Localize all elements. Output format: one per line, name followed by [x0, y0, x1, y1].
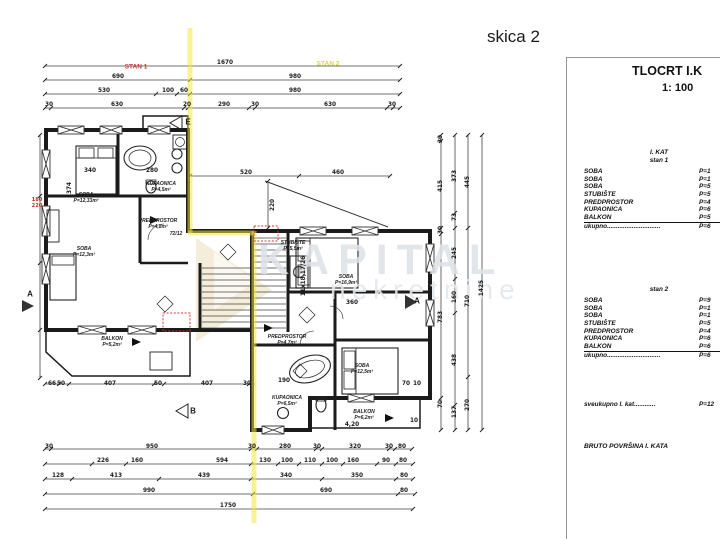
- dimension-label: 20: [183, 102, 191, 108]
- dimension-label: 280: [279, 444, 291, 450]
- dimension-label: 630: [111, 102, 123, 108]
- area-row: PREDPROSTORP=4: [584, 199, 720, 207]
- room-area: P=12,33m²: [74, 198, 99, 204]
- dimension-label: 30: [248, 444, 256, 450]
- dimension-label: 90: [382, 458, 390, 464]
- dimension-label: 226: [97, 458, 109, 464]
- sketch-title: skica 2: [487, 27, 540, 47]
- area-row: SOBAP=9: [584, 297, 720, 305]
- dimension-label: 30: [251, 102, 259, 108]
- section-marker-e: E: [185, 118, 190, 127]
- area-row: KUPAONICAP=6: [584, 335, 720, 343]
- dimension-label: 415: [438, 180, 444, 192]
- dimension-label: 50: [154, 381, 162, 387]
- dimension-label: 30: [438, 135, 444, 143]
- dimension-label: 630: [324, 102, 336, 108]
- dimension-label: 30: [45, 444, 53, 450]
- area-row-total: ukupno..............................P=6: [584, 352, 720, 360]
- dimension-label: 407: [104, 381, 116, 387]
- area-row: SOBAP=1: [584, 168, 720, 176]
- dimension-label: 413: [110, 473, 122, 479]
- dimension-label: 100: [162, 88, 174, 94]
- dimension-label: 340: [280, 473, 292, 479]
- dimension-label: 66: [48, 381, 56, 387]
- area-row-total: ukupno..............................P=6: [584, 223, 720, 231]
- stan2-header: stan 2: [584, 286, 720, 293]
- area-row: BALKONP=5: [584, 214, 720, 223]
- dimension-label: 460: [332, 170, 344, 176]
- section-marker-a: A: [414, 297, 420, 306]
- grand-total-row: sveukupno I. kat............P=12: [584, 401, 720, 409]
- room-area: P=5,2m²: [102, 342, 121, 348]
- room-area: P=6,2m²: [354, 415, 373, 421]
- dimension-label: 220: [32, 203, 43, 209]
- dimension-label: 160: [452, 291, 458, 303]
- area-row: SOBAP=1: [584, 312, 720, 320]
- dimension-label: 445: [465, 176, 471, 188]
- room-area: P=4,8m²: [148, 224, 167, 230]
- bruto-area-label: BRUTO POVRŠINA I. KATA: [584, 443, 668, 450]
- dimension-label: 220: [270, 199, 276, 211]
- stan2-label: STAN 2: [317, 61, 340, 68]
- dimension-label: 990: [143, 488, 155, 494]
- dimension-label: 280: [146, 168, 158, 174]
- dimension-label: 11x18,17/26: [301, 256, 307, 296]
- room-area: P=12,5m²: [351, 369, 373, 375]
- dimension-label: 30: [438, 226, 444, 234]
- dimension-label: 30: [385, 444, 393, 450]
- dimension-label: 160: [347, 458, 359, 464]
- dimension-label: 70: [438, 400, 444, 408]
- dimension-label: 10: [410, 418, 418, 424]
- dimension-label: 30: [313, 444, 321, 450]
- dimension-label: 160: [131, 458, 143, 464]
- dimension-label: 438: [452, 354, 458, 366]
- dimension-label: 439: [198, 473, 210, 479]
- dimension-label: 130: [259, 458, 271, 464]
- dimension-label: 690: [320, 488, 332, 494]
- dimension-label: 60: [180, 88, 188, 94]
- dimension-label: 530: [98, 88, 110, 94]
- room-area: P=6,5m²: [277, 401, 296, 407]
- dimension-label: 290: [218, 102, 230, 108]
- dimension-label: 1670: [217, 60, 233, 66]
- dimension-label: 110: [304, 458, 316, 464]
- floor-header: I. KAT: [584, 149, 720, 156]
- dimension-label: 710: [465, 295, 471, 307]
- room-area: P=12,3m²: [73, 252, 95, 258]
- dimension-label: 520: [240, 170, 252, 176]
- section-marker-b: B: [190, 407, 196, 416]
- area-row: KUPAONICAP=6: [584, 206, 720, 214]
- dimension-label: 4,20: [345, 422, 359, 428]
- dimension-label: 360: [346, 300, 358, 306]
- blueprint-canvas: KAPITAL nekretnine 167069098053010060980…: [0, 0, 720, 539]
- area-row: SOBAP=5: [584, 183, 720, 191]
- room-area: P=5,5m²: [283, 246, 302, 252]
- area-row: SOBAP=1: [584, 176, 720, 184]
- dimension-label: 350: [351, 473, 363, 479]
- stan1-area-table: SOBAP=1 SOBAP=1 SOBAP=5 STUBIŠTEP=5 PRED…: [584, 168, 720, 231]
- dimension-label: 30: [243, 381, 251, 387]
- dimension-label: 73: [452, 213, 458, 221]
- dimension-label: 100: [281, 458, 293, 464]
- dimension-label: 80: [400, 488, 408, 494]
- dimension-label: 594: [216, 458, 228, 464]
- dimension-label: 270: [465, 399, 471, 411]
- dimension-label: 320: [349, 444, 361, 450]
- dimension-label: 190: [278, 378, 290, 384]
- dimension-label: 245: [452, 247, 458, 259]
- dimension-label: 340: [84, 168, 96, 174]
- dimension-label: 980: [289, 88, 301, 94]
- dimension-label: 950: [146, 444, 158, 450]
- dimension-label: 80: [399, 458, 407, 464]
- dimension-label: 80: [400, 473, 408, 479]
- stan2-area-table: SOBAP=9 SOBAP=1 SOBAP=1 STUBIŠTEP=5 PRED…: [584, 297, 720, 360]
- area-row: SOBAP=1: [584, 305, 720, 313]
- dimension-label: 1750: [220, 503, 236, 509]
- dimension-label: 980: [289, 74, 301, 80]
- dimension-label: 70: [402, 381, 410, 387]
- drawing-scale: 1: 100: [662, 82, 693, 94]
- dimension-label: 50: [57, 381, 65, 387]
- area-row: STUBIŠTEP=5: [584, 320, 720, 328]
- drawing-title: TLOCRT I.K: [632, 64, 702, 78]
- dimension-label: 30: [45, 102, 53, 108]
- dimension-label: 373: [452, 170, 458, 182]
- dimension-label: 72/12: [170, 231, 183, 237]
- dimension-label: 128: [52, 473, 64, 479]
- area-row: STUBIŠTEP=5: [584, 191, 720, 199]
- room-area: P=4,5m²: [151, 187, 170, 193]
- stan1-header: stan 1: [584, 157, 720, 164]
- stan1-label: STAN 1: [125, 64, 148, 71]
- plan-labels-layer: 1670690980530100609803063020290306303052…: [0, 0, 720, 539]
- area-row: PREDPROSTORP=4: [584, 328, 720, 336]
- dimension-label: 690: [112, 74, 124, 80]
- dimension-label: 1425: [479, 280, 485, 296]
- room-area: P=4,7m²: [277, 340, 296, 346]
- dimension-label: 407: [201, 381, 213, 387]
- dimension-label: 137: [452, 406, 458, 418]
- room-area: P=16,9m²: [335, 280, 357, 286]
- area-row: BALKONP=6: [584, 343, 720, 352]
- dimension-label: 100: [326, 458, 338, 464]
- dimension-label: 80: [398, 444, 406, 450]
- section-marker-a: A: [27, 290, 33, 299]
- dimension-label: 10: [413, 381, 421, 387]
- dimension-label: 30: [388, 102, 396, 108]
- dimension-label: 374: [67, 182, 73, 194]
- dimension-label: 783: [438, 311, 444, 323]
